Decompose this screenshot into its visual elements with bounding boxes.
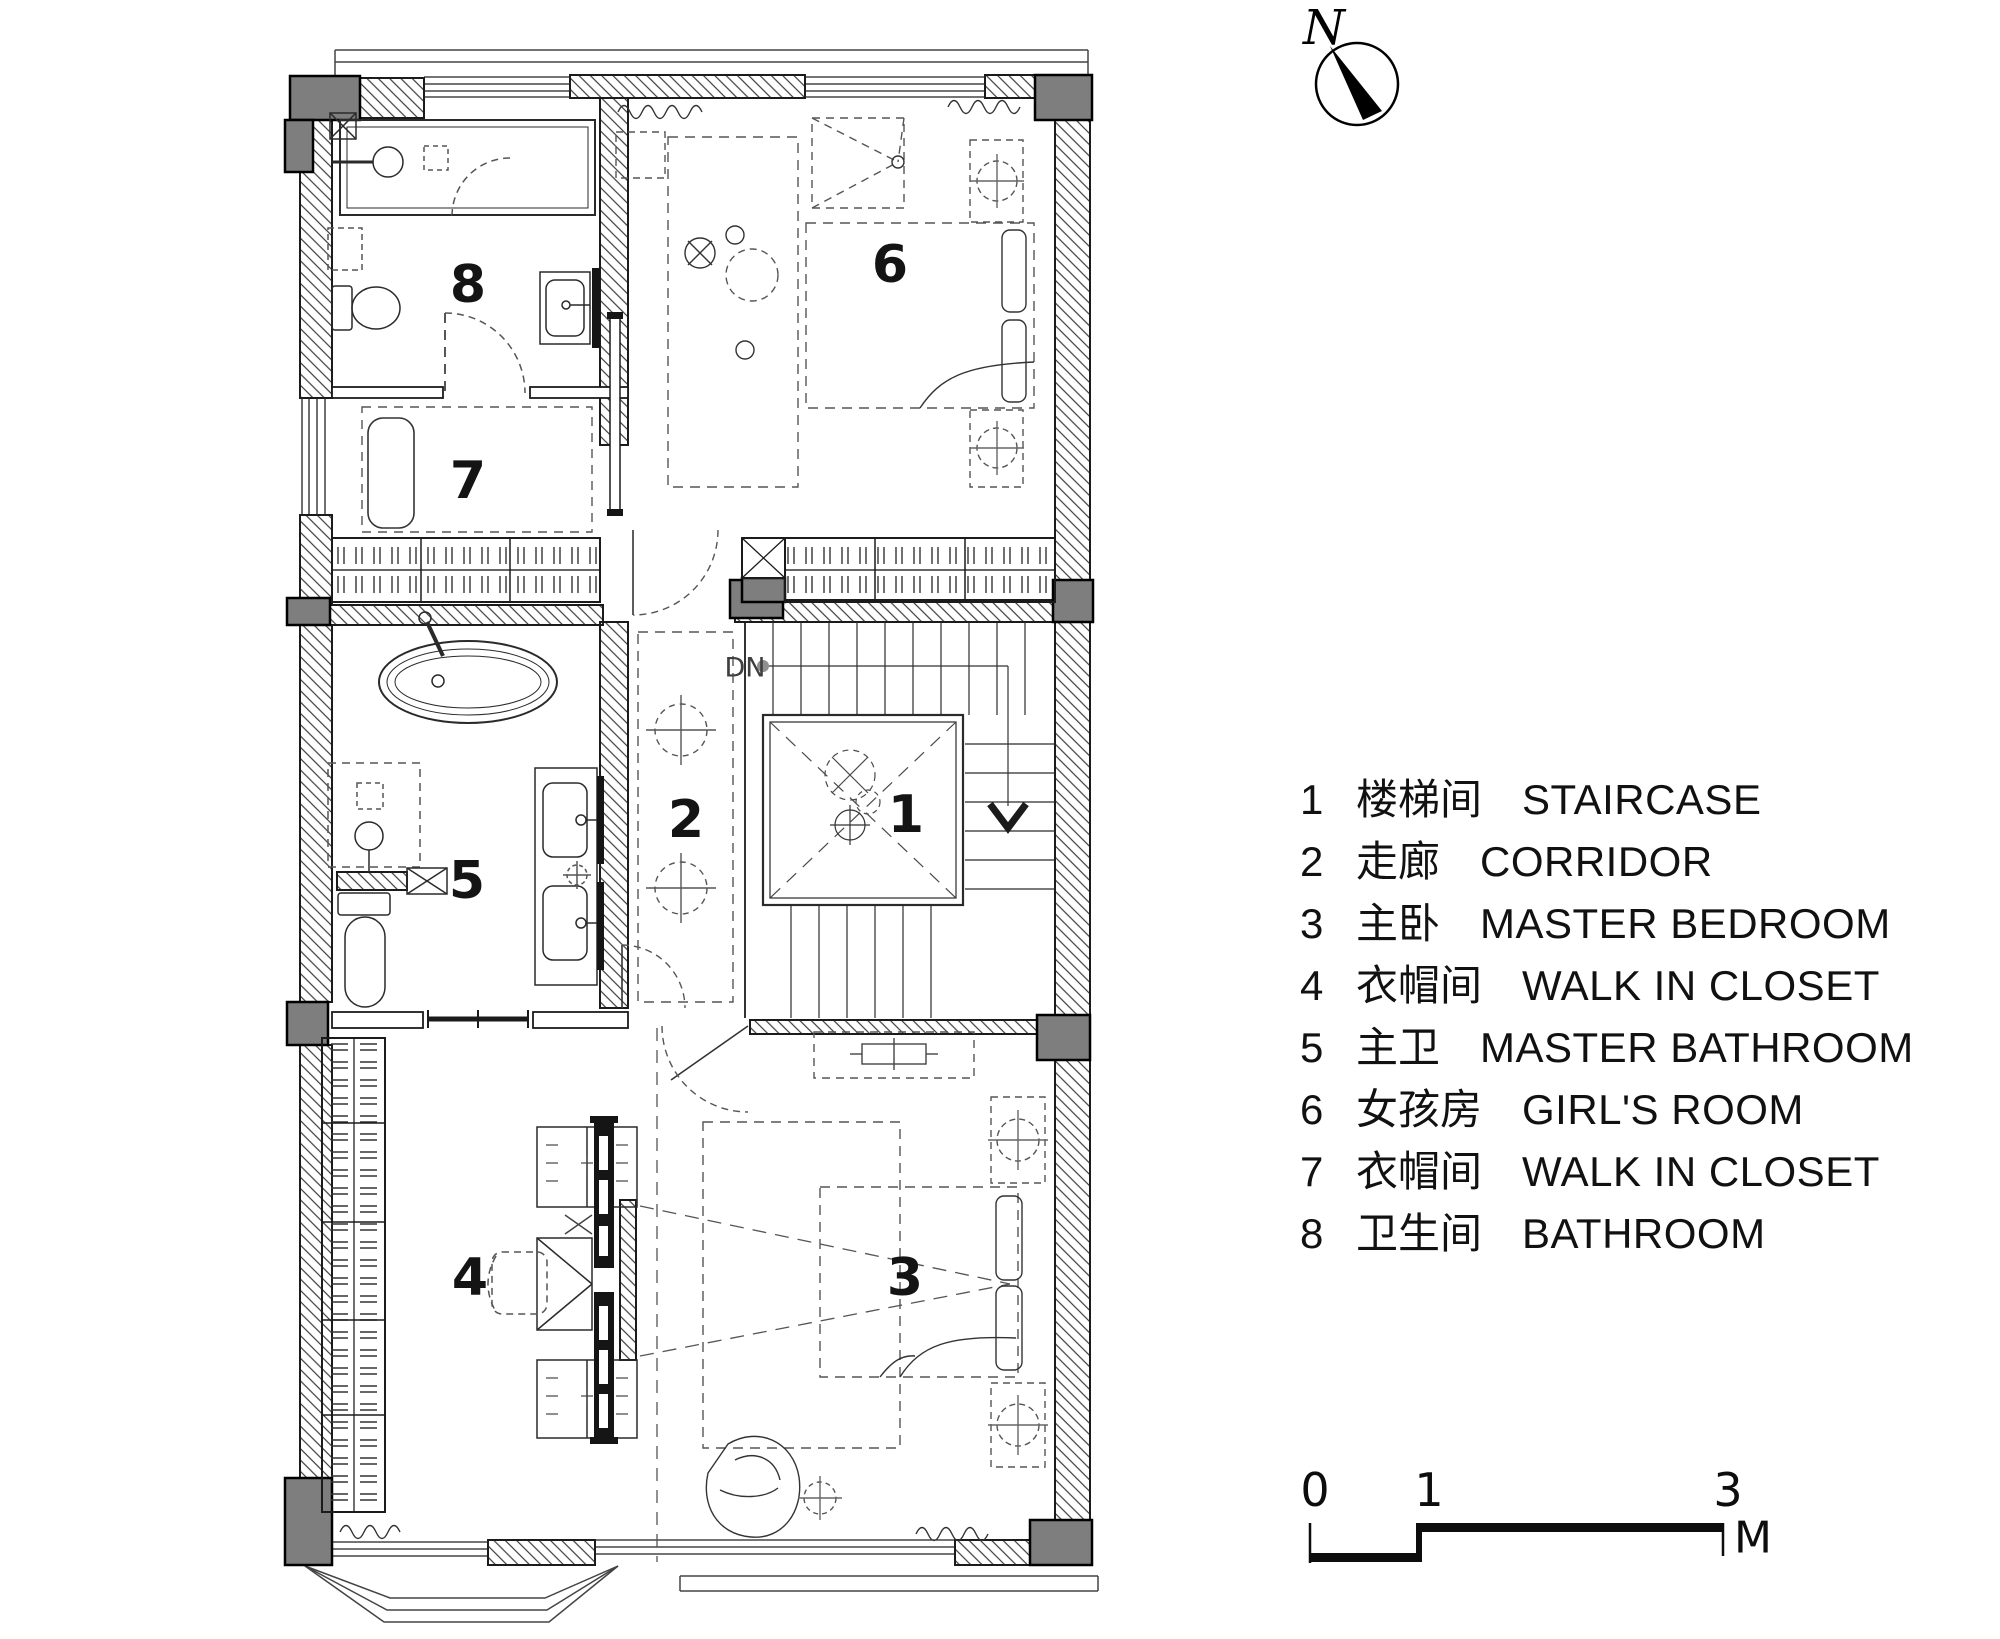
room-label-corridor: 2 [668, 790, 704, 850]
legend-name-zh: 走廊 [1356, 828, 1440, 889]
shower-head-icon [373, 147, 403, 177]
master-bath-fixtures [328, 612, 604, 1007]
girls-room-fixtures [616, 101, 1034, 488]
legend-name-en: STAIRCASE [1522, 776, 1761, 824]
stair-dn-label: DN [725, 653, 766, 684]
scale-unit-label: M [1734, 1513, 1772, 1564]
bed-outline [806, 223, 1034, 408]
legend-row-walk-in-closet-4: 4 衣帽间 WALK IN CLOSET [1300, 952, 1914, 1014]
legend-name-zh: 卫生间 [1356, 1200, 1482, 1261]
legend-name-zh: 楼梯间 [1356, 766, 1482, 827]
room-label-walk-in-closet-7: 7 [450, 451, 486, 511]
legend-name-en: MASTER BATHROOM [1480, 1024, 1914, 1072]
legend-number: 2 [1300, 838, 1356, 886]
legend-row-master-bedroom: 3 主卧 MASTER BEDROOM [1300, 890, 1914, 952]
room-label-walk-in-closet-4: 4 [452, 1248, 488, 1308]
legend-name-en: CORRIDOR [1480, 838, 1713, 886]
door-swing-arc [445, 313, 525, 393]
stair-treads-upper [773, 622, 1025, 715]
legend-name-zh: 女孩房 [1356, 1076, 1482, 1137]
legend-number: 1 [1300, 776, 1356, 824]
legend-name-zh: 衣帽间 [1356, 1138, 1482, 1199]
lounge-chair-icon [706, 1436, 799, 1537]
play-tent-icon [812, 118, 904, 208]
legend-name-en: WALK IN CLOSET [1522, 962, 1880, 1010]
legend-row-corridor: 2 走廊 CORRIDOR [1300, 828, 1914, 890]
legend: 1 楼梯间 STAIRCASE 2 走廊 CORRIDOR 3 主卧 MASTE… [1300, 766, 1914, 1262]
legend-row-walk-in-closet-7: 7 衣帽间 WALK IN CLOSET [1300, 1138, 1914, 1200]
floor-drain-icon [424, 146, 448, 170]
toilet-icon [332, 286, 352, 330]
toy-icon [736, 341, 754, 359]
legend-name-en: BATHROOM [1522, 1210, 1766, 1258]
legend-row-master-bathroom: 5 主卫 MASTER BATHROOM [1300, 1014, 1914, 1076]
sink-icon [543, 783, 587, 857]
room-label-staircase: 1 [888, 785, 924, 845]
legend-number: 5 [1300, 1024, 1356, 1072]
legend-name-zh: 主卫 [1356, 1014, 1440, 1075]
curtain-icon [618, 106, 702, 119]
legend-name-zh: 主卧 [1356, 890, 1440, 951]
sliding-door-panel [607, 312, 623, 516]
chair-outline [492, 1252, 547, 1314]
legend-number: 8 [1300, 1210, 1356, 1258]
toy-ball-icon [726, 249, 778, 301]
dresser [537, 1238, 592, 1330]
reference-lines [640, 1028, 1010, 1562]
legend-row-staircase: 1 楼梯间 STAIRCASE [1300, 766, 1914, 828]
legend-row-bathroom-8: 8 卫生间 BATHROOM [1300, 1200, 1914, 1262]
pillow-icon [1002, 320, 1026, 402]
rug-outline [703, 1122, 900, 1448]
sink-icon [543, 886, 587, 960]
bathroom8-fixtures [328, 113, 600, 393]
legend-number: 6 [1300, 1086, 1356, 1134]
room-label-girls-room: 6 [872, 235, 908, 295]
stair-down-arrow-icon [990, 804, 1026, 828]
floor-plan-page: 1 2 3 4 5 6 7 8 DN N 1 楼梯间 STAIRCASE 2 走… [0, 0, 2000, 1639]
legend-name-en: GIRL'S ROOM [1522, 1086, 1804, 1134]
legend-name-zh: 衣帽间 [1356, 952, 1482, 1013]
pillow-icon [1002, 230, 1026, 312]
windows [302, 77, 985, 1556]
shower-head-icon [355, 822, 383, 850]
legend-number: 4 [1300, 962, 1356, 1010]
legend-number: 7 [1300, 1148, 1356, 1196]
curtain-icon [340, 1526, 400, 1539]
curtain-icon [948, 101, 1020, 114]
legend-number: 3 [1300, 900, 1356, 948]
compass-north-label: N [1303, 0, 1345, 56]
rug-outline [668, 137, 798, 487]
toilet-icon [338, 893, 390, 915]
scale-bar [1310, 1523, 1723, 1563]
master-bedroom-fixtures [340, 1032, 1048, 1541]
curtain-icon [916, 1528, 988, 1541]
legend-name-en: WALK IN CLOSET [1522, 1148, 1880, 1196]
scale-tick-1: 1 [1414, 1463, 1443, 1517]
room-label-master-bedroom: 3 [887, 1248, 923, 1308]
closet4-fixtures [488, 1116, 637, 1444]
room-label-bathroom-8: 8 [450, 255, 486, 315]
room-label-master-bathroom: 5 [449, 851, 485, 911]
stair-treads-right [965, 744, 1055, 889]
stair-treads-lower [791, 905, 931, 1018]
bathtub-icon [379, 641, 557, 723]
legend-row-girls-room: 6 女孩房 GIRL'S ROOM [1300, 1076, 1914, 1138]
toy-icon [726, 226, 744, 244]
scale-tick-3: 3 [1713, 1463, 1742, 1517]
legend-name-en: MASTER BEDROOM [1480, 900, 1891, 948]
scale-tick-0: 0 [1300, 1463, 1329, 1517]
